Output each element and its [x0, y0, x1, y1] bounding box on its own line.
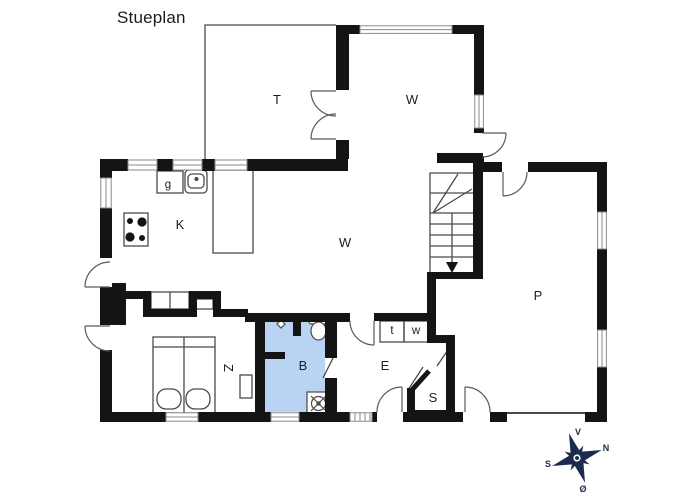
stairs-arrow	[446, 262, 458, 273]
room-labels: T W g K W Z B E t w S P	[165, 92, 543, 405]
label-utility: g	[165, 179, 171, 191]
plan-title: Stueplan	[117, 8, 186, 28]
compass-west: V	[575, 427, 581, 437]
floorplan-drawing: T W g K W Z B E t w S P V N	[0, 0, 700, 500]
vent-grille	[350, 413, 372, 421]
label-living-upper: W	[406, 92, 419, 107]
window	[360, 26, 452, 34]
compass-south: S	[545, 459, 551, 469]
sink-icon	[185, 170, 207, 193]
window	[101, 178, 111, 208]
window	[173, 160, 202, 170]
stove-icon	[125, 217, 146, 241]
label-toilet-closet: t	[390, 325, 394, 337]
compass-east: Ø	[579, 484, 586, 494]
window	[128, 160, 157, 170]
label-living: W	[339, 235, 352, 250]
window	[598, 212, 607, 249]
label-entry: E	[381, 358, 390, 373]
label-washer-closet: w	[411, 325, 421, 337]
window	[166, 413, 198, 421]
compass-rose-icon: V N S Ø	[544, 425, 610, 494]
window	[598, 330, 607, 367]
label-terrace: T	[273, 92, 281, 107]
label-room-p: P	[534, 288, 543, 303]
window	[271, 413, 299, 421]
label-kitchen: K	[176, 217, 185, 232]
label-storage: S	[429, 390, 438, 405]
compass-north: N	[603, 443, 610, 453]
window	[215, 160, 247, 170]
window	[475, 95, 484, 128]
floorplan-page: Stueplan	[0, 0, 700, 500]
label-bathroom: B	[299, 358, 308, 373]
thin-lines	[124, 25, 585, 413]
label-bedroom: Z	[221, 364, 236, 372]
